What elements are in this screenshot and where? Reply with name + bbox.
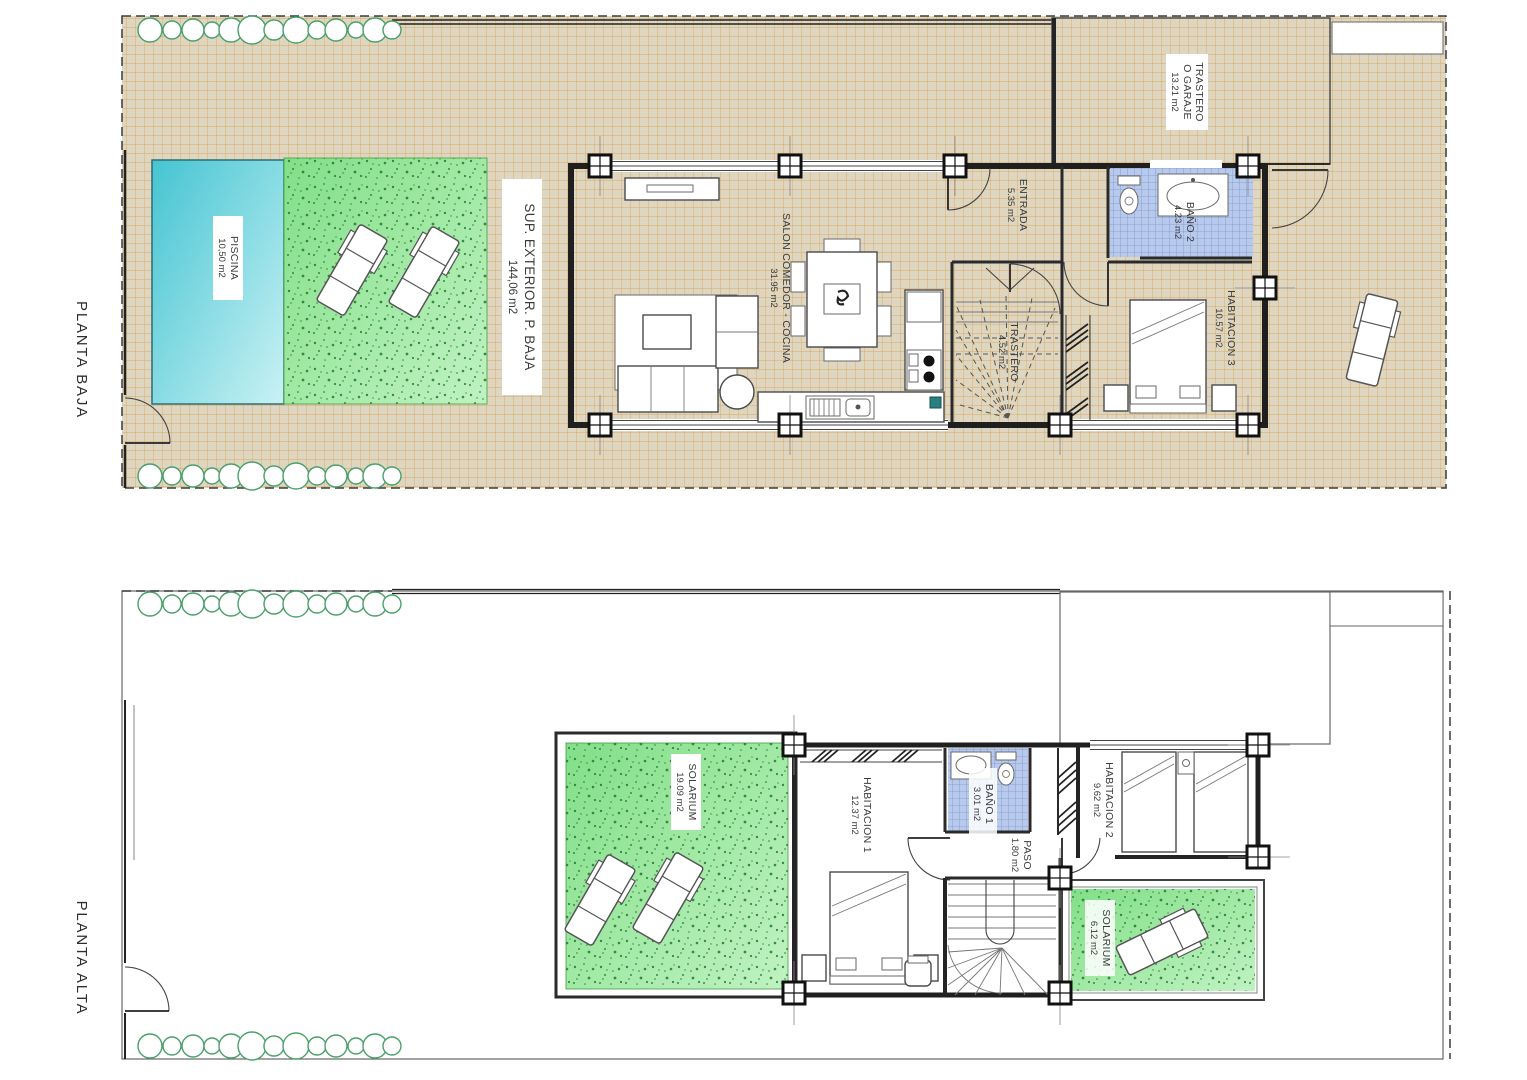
pool: PISCINA 10,50 m2 xyxy=(152,160,284,404)
label-sup-exterior: SUP. EXTERIOR. P. BAJA 144,06 m2 xyxy=(502,179,542,395)
garden-lawn-gf xyxy=(284,158,487,404)
floor-plan-canvas: TRASTERO O GARAJE 13.21 m2 xyxy=(0,0,1527,1080)
kitchen-sink-icon xyxy=(806,396,874,419)
sup-exterior-name: SUP. EXTERIOR. P. BAJA xyxy=(522,203,537,370)
salon-area: 31.95 m2 xyxy=(768,268,779,308)
label-planta-baja: PLANTA BAJA xyxy=(73,301,90,419)
double-bed xyxy=(830,872,908,984)
habitacion1-name: HABITACION 1 xyxy=(861,777,873,853)
bano1-name: BAÑO 1 xyxy=(983,784,996,824)
room-solarium-pequeno: SOLARIUM 6.12 m2 xyxy=(1062,880,1264,1000)
planta-baja-plan: TRASTERO O GARAJE 13.21 m2 xyxy=(73,16,1446,490)
side-strip-roof xyxy=(1330,592,1443,626)
habitacion1-area: 12.37 m2 xyxy=(849,795,860,835)
piscina-name: PISCINA xyxy=(228,236,240,280)
habitacion3-area: 10.57 m2 xyxy=(1213,308,1224,348)
water-heater xyxy=(905,956,931,986)
solarium-pequeno-area: 6.12 m2 xyxy=(1088,921,1099,955)
room-bano1: BAÑO 1 3.01 m2 xyxy=(945,748,1030,840)
planta-baja-title: PLANTA BAJA xyxy=(73,301,90,419)
bano2-area: 4.23 m2 xyxy=(1172,205,1183,239)
toilet-icon xyxy=(1118,176,1140,214)
double-bed xyxy=(1130,300,1206,413)
single-bed xyxy=(1122,752,1176,852)
nightstand xyxy=(1104,385,1128,411)
trastero-name: TRASTERO xyxy=(1008,322,1020,382)
garage-roof-outline xyxy=(1060,592,1330,744)
bano2-name: BAÑO 2 xyxy=(1184,202,1197,242)
fridge-icon xyxy=(907,292,941,322)
label-bano1: BAÑO 1 3.01 m2 xyxy=(969,768,997,840)
ottoman xyxy=(720,375,754,409)
planta-alta-title: PLANTA ALTA xyxy=(73,901,90,1016)
garaje-name-1: TRASTERO xyxy=(1193,62,1205,122)
sup-exterior-area: 144,06 m2 xyxy=(506,260,518,314)
bin-icon xyxy=(930,397,941,408)
room-solarium-grande: SOLARIUM 19.09 m2 xyxy=(556,733,796,997)
label-trastero-garaje: TRASTERO O GARAJE 13.21 m2 xyxy=(1166,54,1208,130)
label-solarium-pequeno: SOLARIUM 6.12 m2 xyxy=(1085,900,1115,976)
label-bano2: BAÑO 2 4.23 m2 xyxy=(1172,202,1197,242)
lamp-icon xyxy=(1183,760,1190,767)
entrada-name: ENTRADA xyxy=(1017,179,1029,231)
solarium-pequeno-name: SOLARIUM xyxy=(1100,909,1112,966)
nightstand xyxy=(1212,385,1236,411)
entrada-area: 5.35 m2 xyxy=(1005,188,1016,222)
label-solarium-grande: SOLARIUM 19.09 m2 xyxy=(671,754,701,830)
single-bed xyxy=(1194,752,1248,852)
garaje-name-2: O GARAJE xyxy=(1181,64,1193,120)
tv-cabinet xyxy=(625,178,719,200)
solarium-grande-name: SOLARIUM xyxy=(686,763,698,820)
label-planta-alta: PLANTA ALTA xyxy=(73,901,90,1016)
stove-icon xyxy=(907,350,941,390)
solarium-grande-area: 19.09 m2 xyxy=(674,772,685,812)
habitacion2-name: HABITACION 2 xyxy=(1103,762,1115,838)
habitacion2-area: 9.62 m2 xyxy=(1091,783,1102,817)
side-strip xyxy=(1332,22,1443,54)
toilet-icon xyxy=(996,752,1016,785)
nightstand xyxy=(802,955,826,981)
room-bano2: BAÑO 2 4.23 m2 xyxy=(1108,166,1253,258)
floor-plan-page: TRASTERO O GARAJE 13.21 m2 xyxy=(0,0,1527,1080)
habitacion3-name: HABITACION 3 xyxy=(1225,290,1237,366)
paso-area: 1.80 m2 xyxy=(1009,838,1020,872)
garaje-area: 13.21 m2 xyxy=(1169,72,1180,112)
trastero-area: 4.52 m2 xyxy=(996,335,1007,369)
salon-name: SALON COMEDOR - COCINA xyxy=(780,213,792,363)
paso-name: PASO xyxy=(1021,840,1033,870)
bano1-area: 3.01 m2 xyxy=(971,787,982,821)
piscina-area: 10,50 m2 xyxy=(216,238,227,278)
planta-alta-plan: SOLARIUM 19.09 m2 xyxy=(73,590,1450,1061)
label-piscina: PISCINA 10,50 m2 xyxy=(213,216,243,300)
